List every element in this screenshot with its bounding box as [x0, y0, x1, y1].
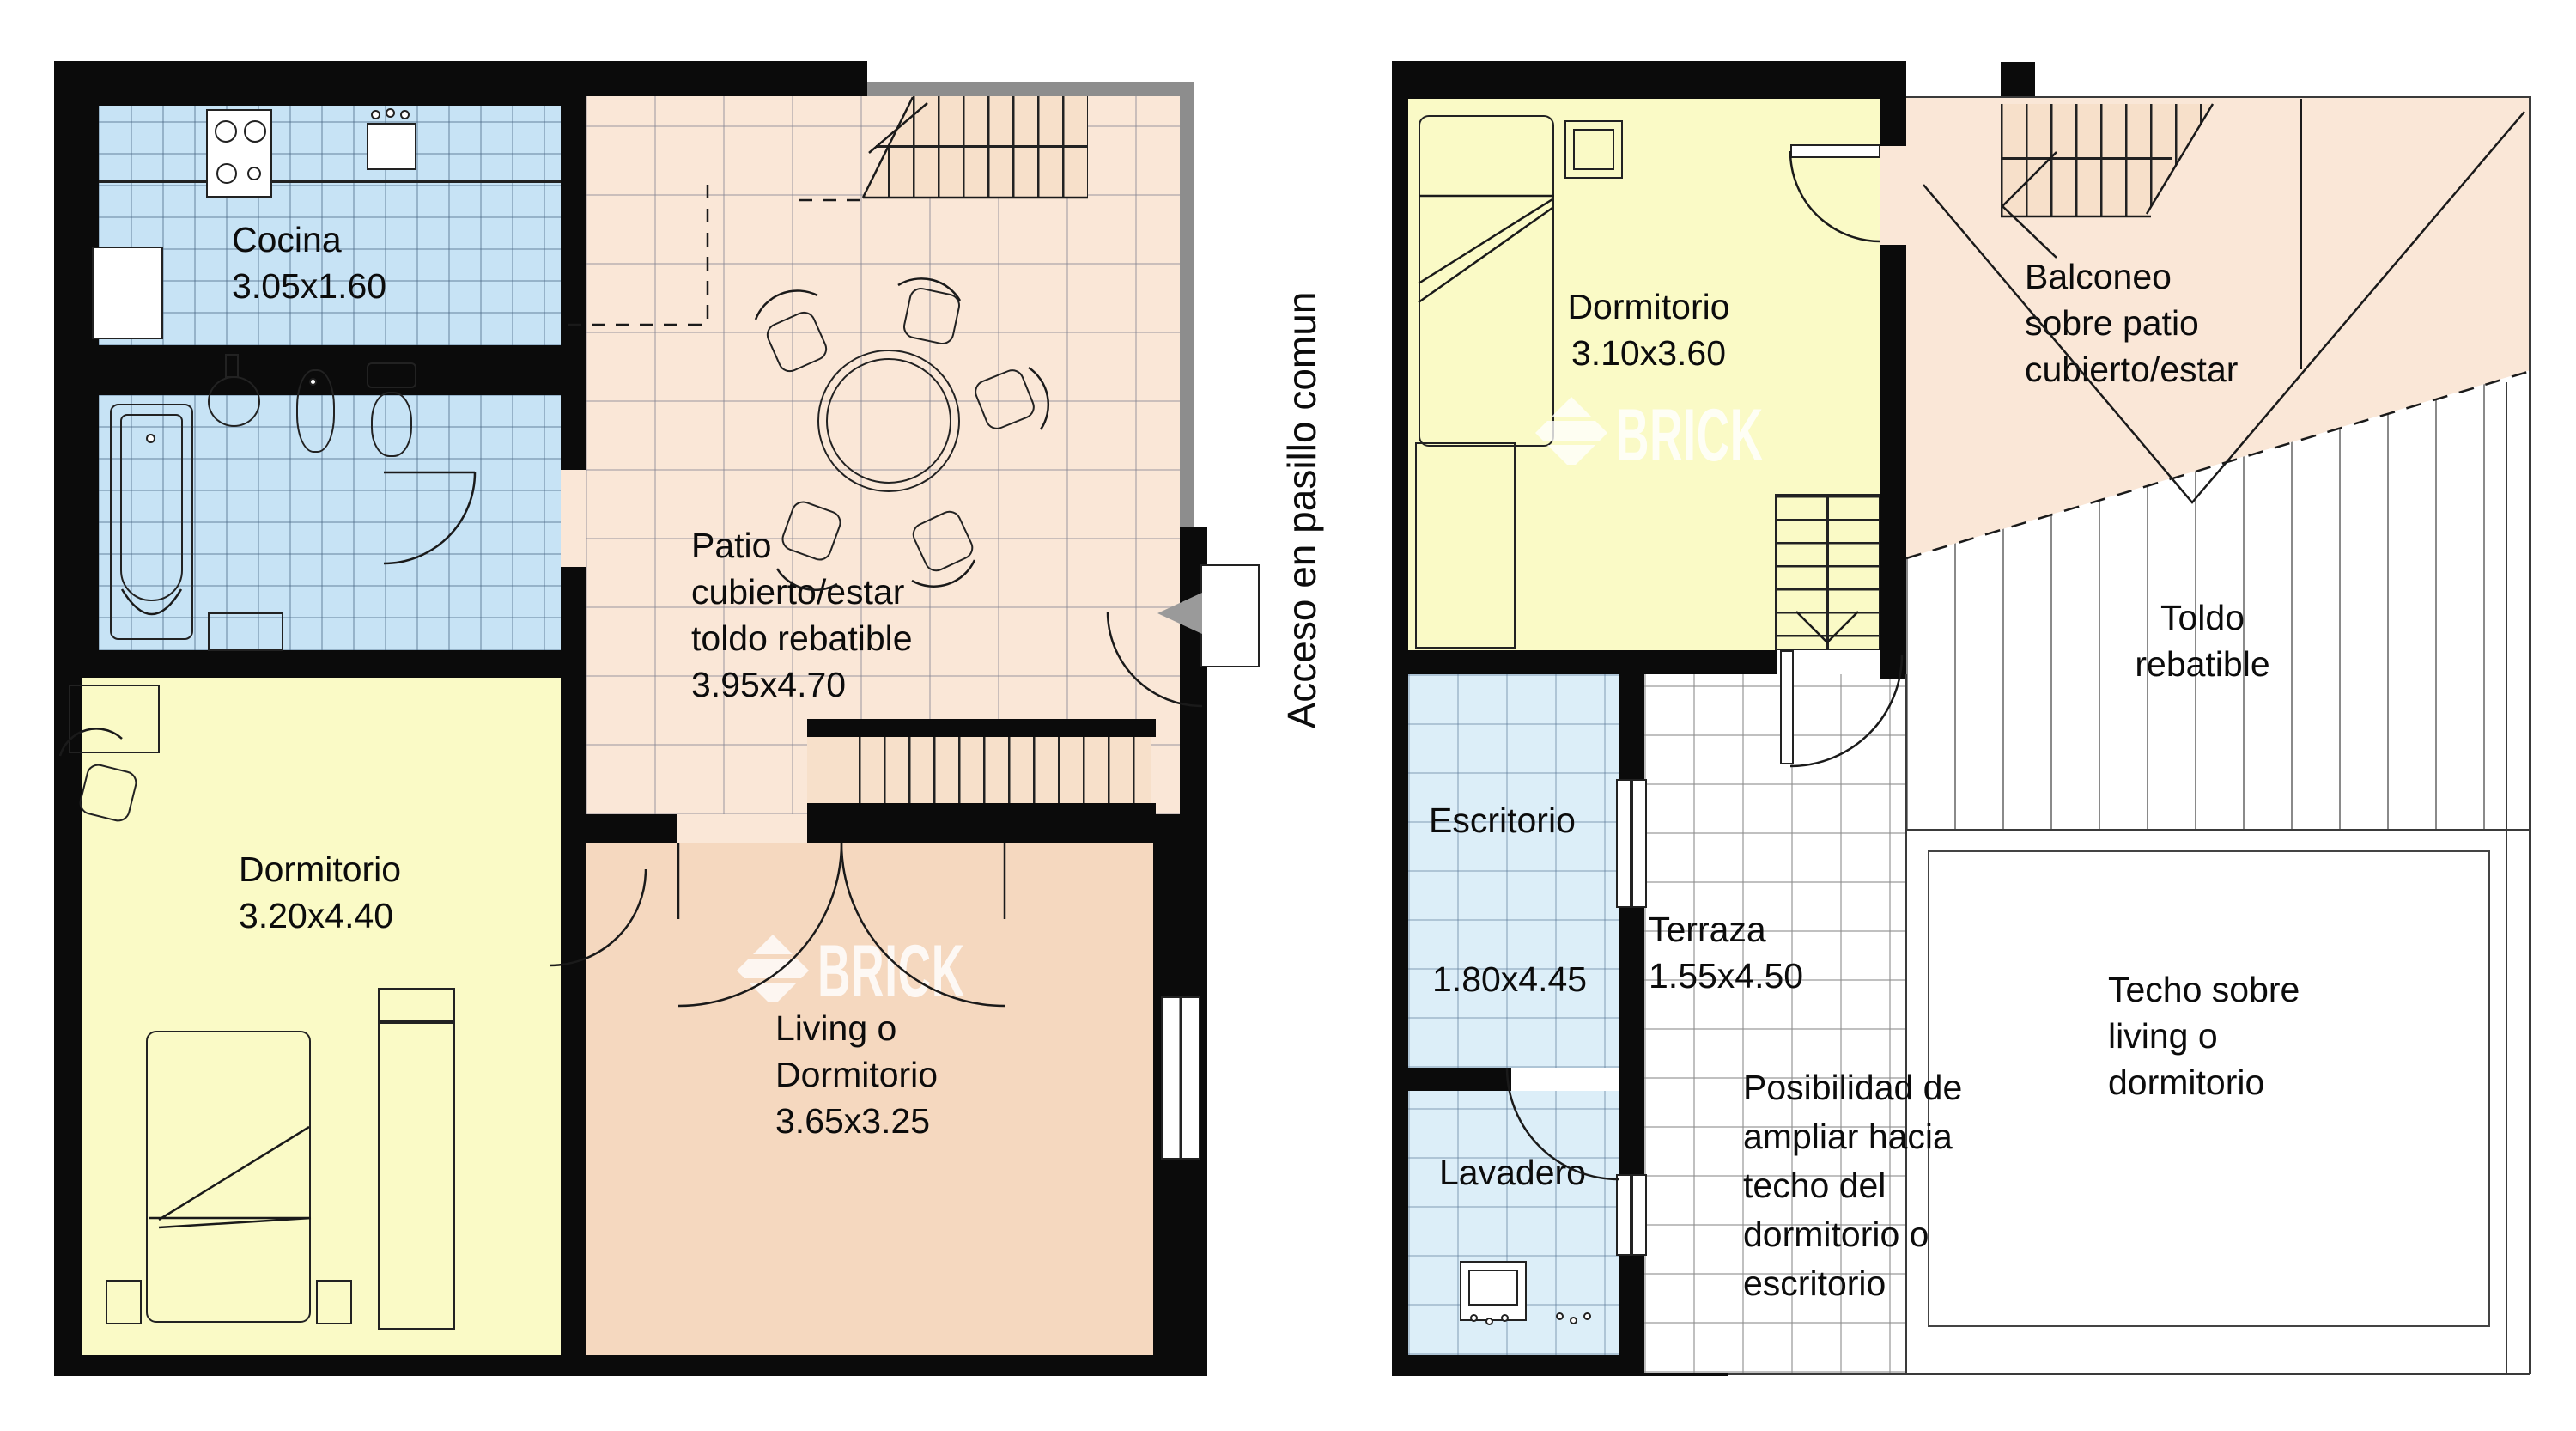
label-living: Living o Dormitorio 3.65x3.25: [775, 1005, 938, 1144]
label-terraza: Terraza 1.55x4.50: [1649, 906, 1803, 999]
entry-door-frame: [1200, 564, 1260, 667]
faucet: [386, 108, 395, 118]
chair: [901, 285, 962, 346]
room-dims: 3.20x4.40: [239, 892, 401, 939]
wall: [1392, 61, 1906, 99]
brand-text: BRICK: [817, 930, 965, 1013]
label-techo: Techo sobre living o dormitorio: [2108, 966, 2300, 1105]
room-name: Techo sobre: [2108, 966, 2300, 1013]
bath-mat: [208, 612, 283, 651]
annotation-text: ampliar hacia: [1743, 1112, 1962, 1161]
fridge: [92, 247, 163, 339]
label-escritorio: Escritorio: [1429, 797, 1576, 843]
room-name: rebatible: [2095, 641, 2310, 687]
stair-midline: [2001, 157, 2172, 160]
window: [1616, 779, 1647, 908]
tap-dot: [1570, 1317, 1577, 1324]
tap-dot: [1583, 1312, 1591, 1320]
outline: [1728, 1373, 2530, 1375]
room-name: Toldo: [2095, 594, 2310, 641]
annotation-text: dormitorio o: [1743, 1210, 1962, 1259]
wardrobe: [1415, 442, 1516, 649]
wall: [2001, 62, 2035, 96]
room-name: Dormitorio: [239, 846, 401, 892]
wall: [807, 719, 1156, 737]
room-name: living o: [2108, 1013, 2300, 1059]
nightstand: [316, 1280, 352, 1324]
room-name: dormitorio: [2108, 1059, 2300, 1105]
annotation-text: Posibilidad de: [1743, 1063, 1962, 1112]
side-table-inner: [1573, 129, 1614, 170]
washer-inner: [1468, 1270, 1518, 1306]
outline: [1906, 96, 2530, 98]
room-name: Lavadero: [1439, 1153, 1586, 1192]
room-name: Patio: [691, 522, 913, 569]
tap-dot: [1556, 1312, 1564, 1320]
dining-table-inner: [826, 358, 951, 484]
bed: [1419, 115, 1554, 447]
wall: [1392, 99, 1408, 1376]
washer-dot: [1501, 1314, 1509, 1322]
brand-text: BRICK: [1616, 394, 1764, 477]
toilet-tank: [367, 362, 416, 388]
room-name: Dormitorio: [775, 1051, 938, 1098]
brick-watermark: BRICK: [1616, 393, 1764, 478]
wall: [1392, 650, 1777, 674]
room-dims: 1.55x4.50: [1649, 953, 1803, 999]
label-lavadero: Lavadero: [1439, 1149, 1586, 1196]
burner: [215, 120, 237, 143]
window: [1161, 996, 1200, 1160]
nightstand: [106, 1280, 142, 1324]
label-escritorio-dims: 1.80x4.45: [1432, 956, 1587, 1002]
door-leaf: [1790, 144, 1880, 158]
desk: [69, 685, 160, 753]
faucet: [400, 110, 410, 119]
bed: [146, 1031, 311, 1323]
tub-drain: [146, 434, 155, 443]
counter-edge: [99, 180, 561, 183]
toilet-bowl: [371, 392, 412, 457]
room-name: sobre patio: [2025, 300, 2238, 346]
faucet: [371, 110, 380, 119]
label-cocina: Cocina 3.05x1.60: [232, 216, 386, 309]
label-patio: Patio cubierto/estar toldo rebatible 3.9…: [691, 522, 913, 708]
annotation-text: Acceso en pasillo comun: [1279, 292, 1324, 729]
wall: [1880, 245, 1906, 679]
room-escritorio: [1408, 674, 1619, 1068]
room-name: Dormitorio: [1507, 283, 1790, 330]
gray-wall: [1180, 82, 1194, 527]
annotation-text: escritorio: [1743, 1259, 1962, 1308]
washer-dot: [1485, 1318, 1493, 1325]
entry-arrow-icon: [1157, 593, 1202, 634]
door-opening: [561, 470, 586, 567]
door-leaf: [1780, 650, 1794, 764]
outline: [2506, 382, 2507, 1374]
closet-shelves: [378, 1022, 455, 1330]
room-dims: 3.95x4.70: [691, 661, 913, 708]
room-name: Balconeo: [2025, 253, 2238, 300]
room-name: Cocina: [232, 216, 386, 263]
wall: [1408, 1068, 1511, 1091]
burner: [216, 163, 237, 184]
burner: [244, 120, 266, 143]
label-dormitorio: Dormitorio 3.20x4.40: [239, 846, 401, 939]
outline: [2529, 96, 2531, 1374]
gray-wall: [867, 82, 1194, 96]
stair-midline: [876, 145, 1088, 148]
bath-tap: [225, 354, 239, 378]
burner: [247, 167, 261, 180]
label-balconeo: Balconeo sobre patio cubierto/estar: [2025, 253, 2238, 393]
bidet-dot: [309, 378, 317, 386]
room-name: Terraza: [1649, 906, 1803, 953]
floorplan-image: Cocina 3.05x1.60 Patio cubierto/estar to…: [0, 0, 2576, 1431]
room-name: cubierto/estar: [2025, 346, 2238, 393]
room-name: cubierto/estar: [691, 569, 913, 615]
bath-sink: [208, 376, 260, 427]
outline: [1906, 829, 2530, 831]
label-dormitorio2: Dormitorio 3.10x3.60: [1507, 283, 1790, 376]
window: [1616, 1174, 1647, 1256]
brick-watermark: BRICK: [817, 929, 965, 1014]
label-toldo: Toldo rebatible: [2095, 594, 2310, 687]
room-dims: 3.05x1.60: [232, 263, 386, 309]
washer-dot: [1470, 1314, 1478, 1322]
room-name: toldo rebatible: [691, 615, 913, 661]
door-opening: [1880, 146, 1906, 245]
annotation-text: techo del: [1743, 1161, 1962, 1210]
closet-top: [378, 988, 455, 1022]
exterior-gap: [867, 61, 1207, 82]
stair-midline: [1826, 494, 1829, 650]
room-name: Escritorio: [1429, 801, 1576, 840]
label-acceso: Acceso en pasillo comun: [1279, 124, 1318, 897]
room-dims: 3.65x3.25: [775, 1098, 938, 1144]
stair-landing: [807, 737, 859, 803]
exterior-gap: [1194, 82, 1207, 527]
label-posibilidad: Posibilidad de ampliar hacia techo del d…: [1743, 1063, 1962, 1308]
room-dims: 3.10x3.60: [1507, 330, 1790, 376]
stairs-living: [859, 737, 1151, 803]
wall: [1880, 99, 1906, 146]
kitchen-sink: [367, 123, 416, 170]
room-dims: 1.80x4.45: [1432, 959, 1587, 999]
wall: [807, 803, 1156, 843]
